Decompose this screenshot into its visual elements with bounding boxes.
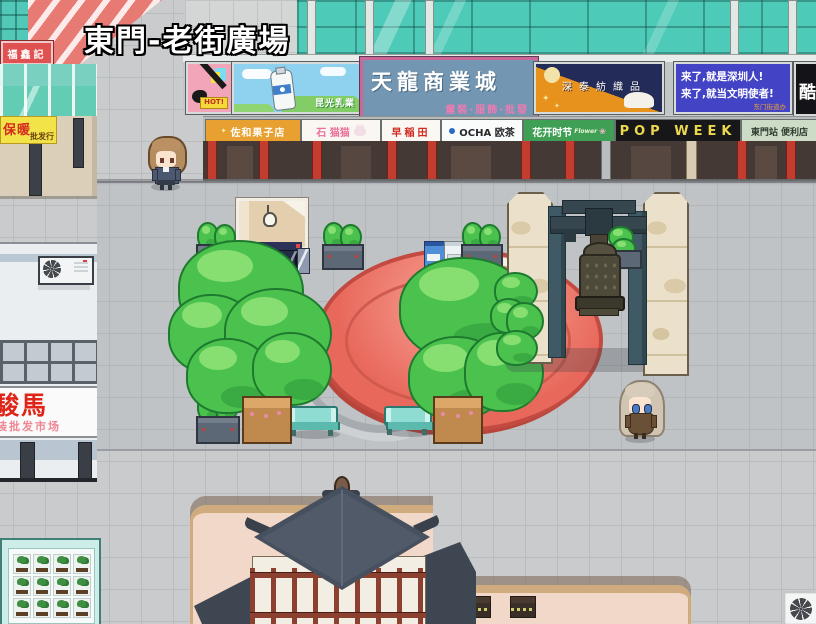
horse-market-main-label: 駿馬 — [0, 386, 48, 422]
stone-cat-label: 石 猫猫 — [316, 124, 349, 139]
avatar-leg — [642, 433, 646, 439]
mall-title: 天龍商業城 — [371, 66, 501, 96]
sparkle-icon: ✦ — [221, 127, 228, 135]
courtyard-planter — [510, 596, 536, 618]
avatar-arm — [175, 169, 181, 181]
cool-sign-label: 酷 — [799, 78, 816, 103]
bell-monument[interactable] — [490, 186, 690, 381]
avatar-arm — [625, 415, 631, 428]
slogan-line1: 来了,就是深圳人! — [681, 69, 763, 84]
avatar-leg — [160, 185, 164, 190]
red-pillar — [312, 141, 322, 179]
potted-plant — [73, 598, 91, 618]
plant-shop — [0, 538, 101, 624]
pagoda-ridge — [341, 490, 343, 586]
milk-bottle-icon — [270, 69, 297, 111]
npc-avatar[interactable] — [616, 378, 664, 444]
cloud — [242, 69, 272, 79]
banner-milk: 昆光乳業 — [232, 62, 362, 114]
pop-week-label: POP WEEK — [620, 124, 737, 139]
glass-mullion — [425, 0, 434, 62]
glass-mullion — [788, 0, 797, 62]
plant-shelves — [13, 554, 91, 618]
cat-silhouette-icon — [624, 92, 654, 108]
banner-guitar: HOT! — [186, 62, 234, 114]
tree-planter-wood — [242, 396, 292, 444]
banner-textile: ✦ ✦ 深泰紡織品 — [534, 62, 664, 114]
sign-convenience: 東門站 便利店 — [741, 119, 816, 143]
glass-mullion — [307, 0, 316, 62]
avatar-collar — [163, 167, 169, 172]
sparkle-icon: ✦ — [615, 128, 616, 135]
tree-planter-wood — [433, 396, 483, 444]
sign-ocha: OCHA 欧茶 — [441, 119, 523, 143]
avatar-bangs — [152, 138, 180, 151]
map-wheel-icon — [790, 598, 812, 620]
warm-sub-label: 批发行 — [30, 131, 54, 142]
warm-main-label: 保暖 — [3, 119, 31, 138]
wall-pillar — [78, 442, 92, 480]
grass — [234, 104, 274, 112]
moon-icon — [544, 67, 560, 83]
storefront-door — [451, 146, 491, 179]
potted-plant — [13, 598, 31, 618]
textile-sparkle-icon: ✦ — [542, 94, 550, 104]
mall-subtitle: 童裝·服飾·批發 — [445, 101, 529, 116]
hot-tag: HOT! — [200, 97, 228, 109]
mint-storefront — [0, 86, 97, 118]
bush-front — [490, 272, 542, 366]
ac-shadow — [38, 283, 90, 290]
fuxinji-label: 福鑫記 — [8, 46, 47, 61]
storefront-door — [755, 146, 777, 179]
glass-mullion — [365, 0, 374, 62]
building-base — [0, 478, 97, 482]
warm-sign: 保暖 批发行 — [0, 116, 57, 144]
flower-season-label: 花开时节 — [532, 124, 572, 139]
slogan-line2: 来了,就当文明使者! — [681, 86, 774, 101]
storefront-base — [203, 141, 816, 179]
banner-mall: 天龍商業城 童裝·服飾·批發 — [360, 57, 538, 123]
player-avatar[interactable] — [144, 134, 188, 192]
avatar-bangs — [625, 383, 655, 397]
tea-dot-icon — [449, 128, 455, 134]
sign-flower-season: 花开时节 Flower ❀ — [523, 119, 615, 143]
gray-pillar — [601, 141, 611, 179]
tan-pillar — [686, 141, 697, 179]
red-pillar — [207, 141, 217, 179]
window-row — [0, 340, 97, 384]
wall-pillar — [29, 140, 42, 196]
pagoda-lower-roof-right — [418, 542, 476, 624]
potted-plant — [53, 554, 71, 574]
potted-plant — [33, 576, 51, 596]
sign-sawa: ✦ 佐和果子店 — [205, 119, 301, 143]
avatar-eye — [170, 158, 174, 163]
flower-script: Flower — [574, 128, 597, 135]
fuxinji-sign: 福鑫記 — [0, 40, 54, 66]
red-pillar — [427, 141, 437, 179]
horse-market-building: 駿馬 装批发市场 — [0, 242, 97, 482]
potted-plant — [53, 576, 71, 596]
frame-tooth — [564, 230, 576, 242]
potted-plant — [13, 576, 31, 596]
red-pillar — [737, 141, 747, 179]
slogan-credit: 东门街道办 — [754, 101, 787, 111]
textile-sparkle-icon: ✦ — [554, 102, 560, 110]
cat-icon — [354, 127, 366, 136]
potted-plant — [53, 598, 71, 618]
potted-plant — [13, 554, 31, 574]
ac-unit — [38, 256, 94, 285]
textile-label: 深泰紡織品 — [562, 78, 647, 93]
red-pillar — [259, 141, 269, 179]
avatar-leg — [634, 433, 638, 439]
potted-plant — [33, 554, 51, 574]
map-button[interactable] — [783, 591, 816, 624]
wall-pillar — [20, 442, 35, 480]
ocha-label: OCHA 欧茶 — [459, 124, 514, 139]
red-pillar — [565, 141, 575, 179]
storefront-door — [227, 146, 253, 179]
stone-pillar-right — [643, 192, 689, 376]
horse-market-sub-label: 装批发市场 — [0, 418, 61, 434]
banner-slogan: 来了,就是深圳人! 来了,就当文明使者! 东门街道办 — [674, 62, 792, 114]
red-pillar — [521, 141, 531, 179]
storefront-door — [631, 146, 671, 179]
potted-plant — [33, 598, 51, 618]
potted-plant — [73, 554, 91, 574]
avatar-arm — [651, 415, 657, 428]
sign-waseda: 早稲田 — [381, 119, 441, 143]
pagoda — [192, 462, 482, 624]
red-pillar — [387, 141, 397, 179]
game-viewport[interactable]: HOT! 昆光乳業 天龍商業城 童裝·服飾·批發 ✦ ✦ 深泰紡織品 来了,就是… — [0, 0, 816, 624]
milk-banner-label: 昆光乳業 — [315, 96, 355, 109]
red-pillar — [786, 141, 796, 179]
convenience-label: 東門站 便利店 — [751, 125, 808, 138]
temple-bell — [575, 242, 621, 316]
potted-plant — [73, 576, 91, 596]
bulb-icon — [263, 212, 277, 227]
avatar-eye — [160, 158, 164, 163]
glass-mullion — [730, 0, 739, 62]
horse-market-sign: 駿馬 装批发市场 — [0, 386, 97, 438]
storefront-door — [341, 146, 371, 179]
flower-icon: ❀ — [599, 127, 606, 136]
page-title: 東門-老街廣場 — [84, 16, 290, 60]
storefront-shadow — [97, 179, 816, 185]
left-teal-strip — [0, 64, 97, 88]
sign-stone-cat: 石 猫猫 — [301, 119, 381, 143]
wall-pillar — [73, 118, 84, 168]
sawa-label: 佐和果子店 — [230, 124, 285, 139]
cloud — [320, 67, 346, 76]
avatar-leg — [168, 185, 172, 190]
banner-cool: 酷 — [794, 62, 816, 116]
ac-fan-icon — [43, 260, 61, 278]
sign-pop-week: ✦ POP WEEK ✦ — [615, 119, 741, 143]
waseda-label: 早稲田 — [392, 124, 431, 139]
